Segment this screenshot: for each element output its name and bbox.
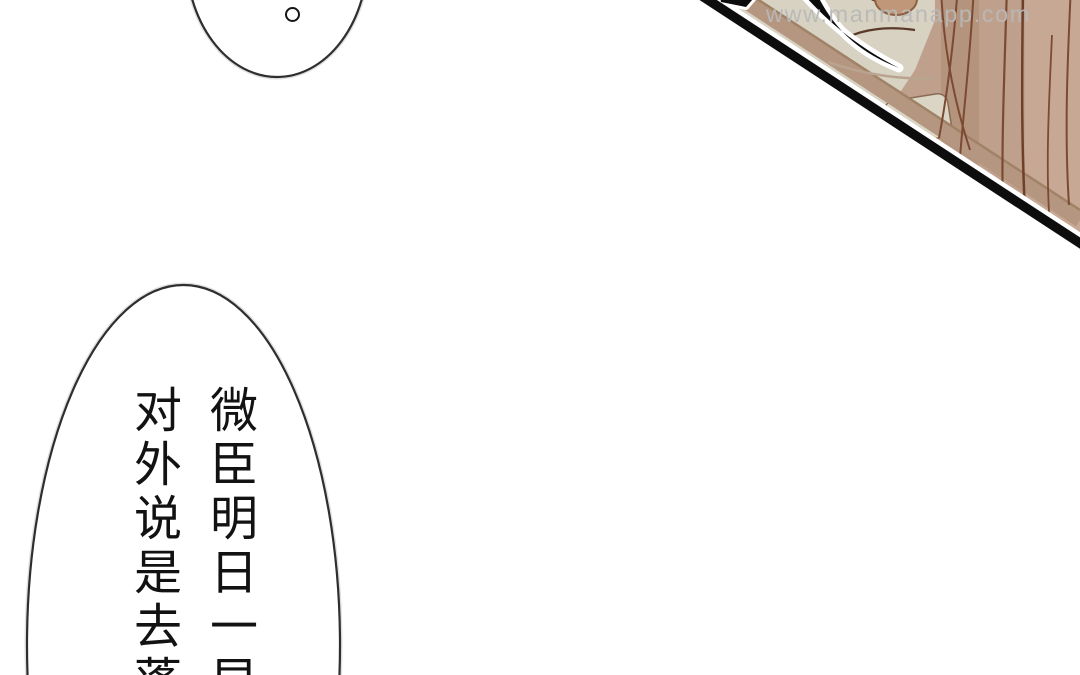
speech-bubble-main-text: 微臣明日一早 对外说是去蓬 bbox=[114, 385, 266, 675]
artwork-fragment bbox=[690, 0, 1080, 280]
comic-page: www.manmanapp.com 。 微臣明日一早 对外说是去蓬 bbox=[0, 0, 1080, 675]
speech-line: 微臣明日一早 bbox=[190, 385, 266, 675]
speech-line: 对外说是去蓬 bbox=[114, 385, 190, 675]
ideographic-period-mark: 。 bbox=[285, 7, 300, 22]
speech-bubble-top-outline bbox=[186, 0, 368, 77]
watermark-text: www.manmanapp.com bbox=[766, 0, 1031, 29]
speech-bubble-top bbox=[186, 0, 368, 77]
